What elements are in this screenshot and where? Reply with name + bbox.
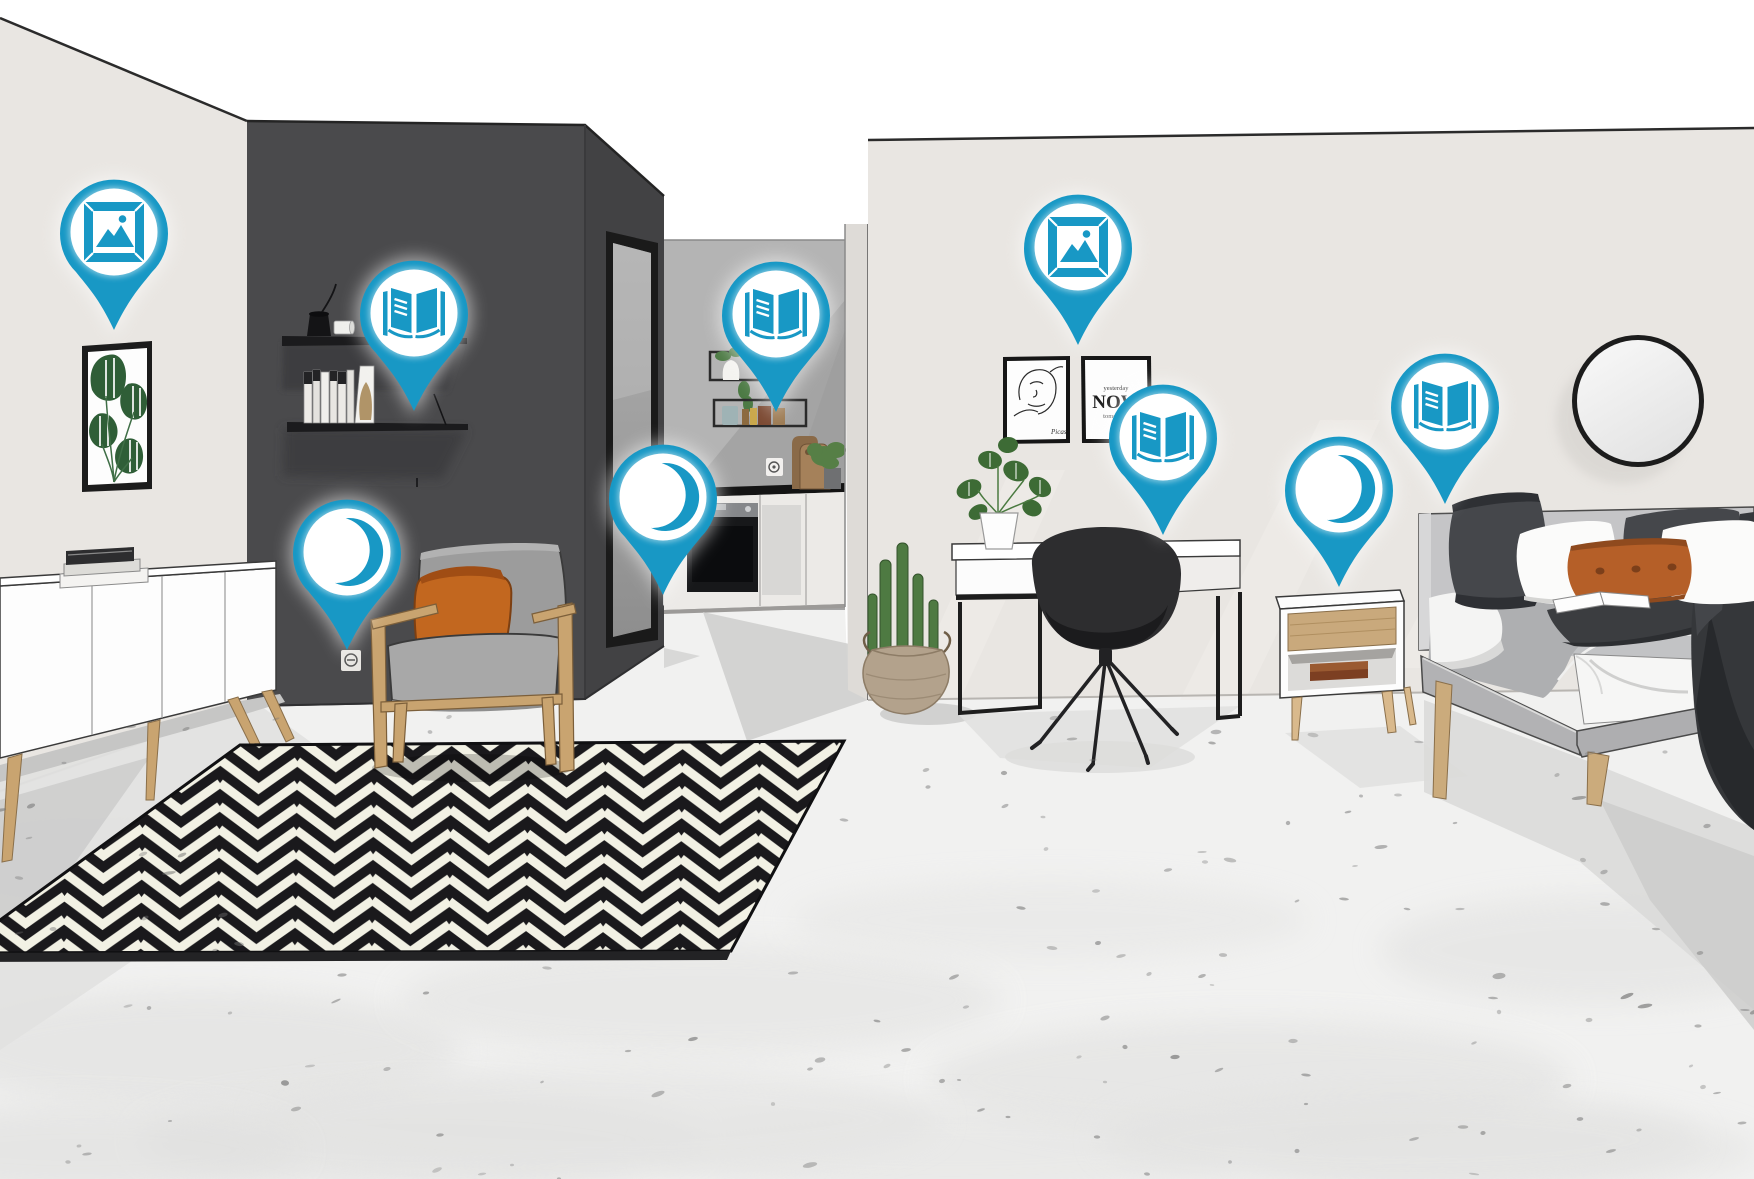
svg-text:yesterday: yesterday <box>1104 385 1130 392</box>
svg-text:Picas: Picas <box>1050 428 1067 436</box>
